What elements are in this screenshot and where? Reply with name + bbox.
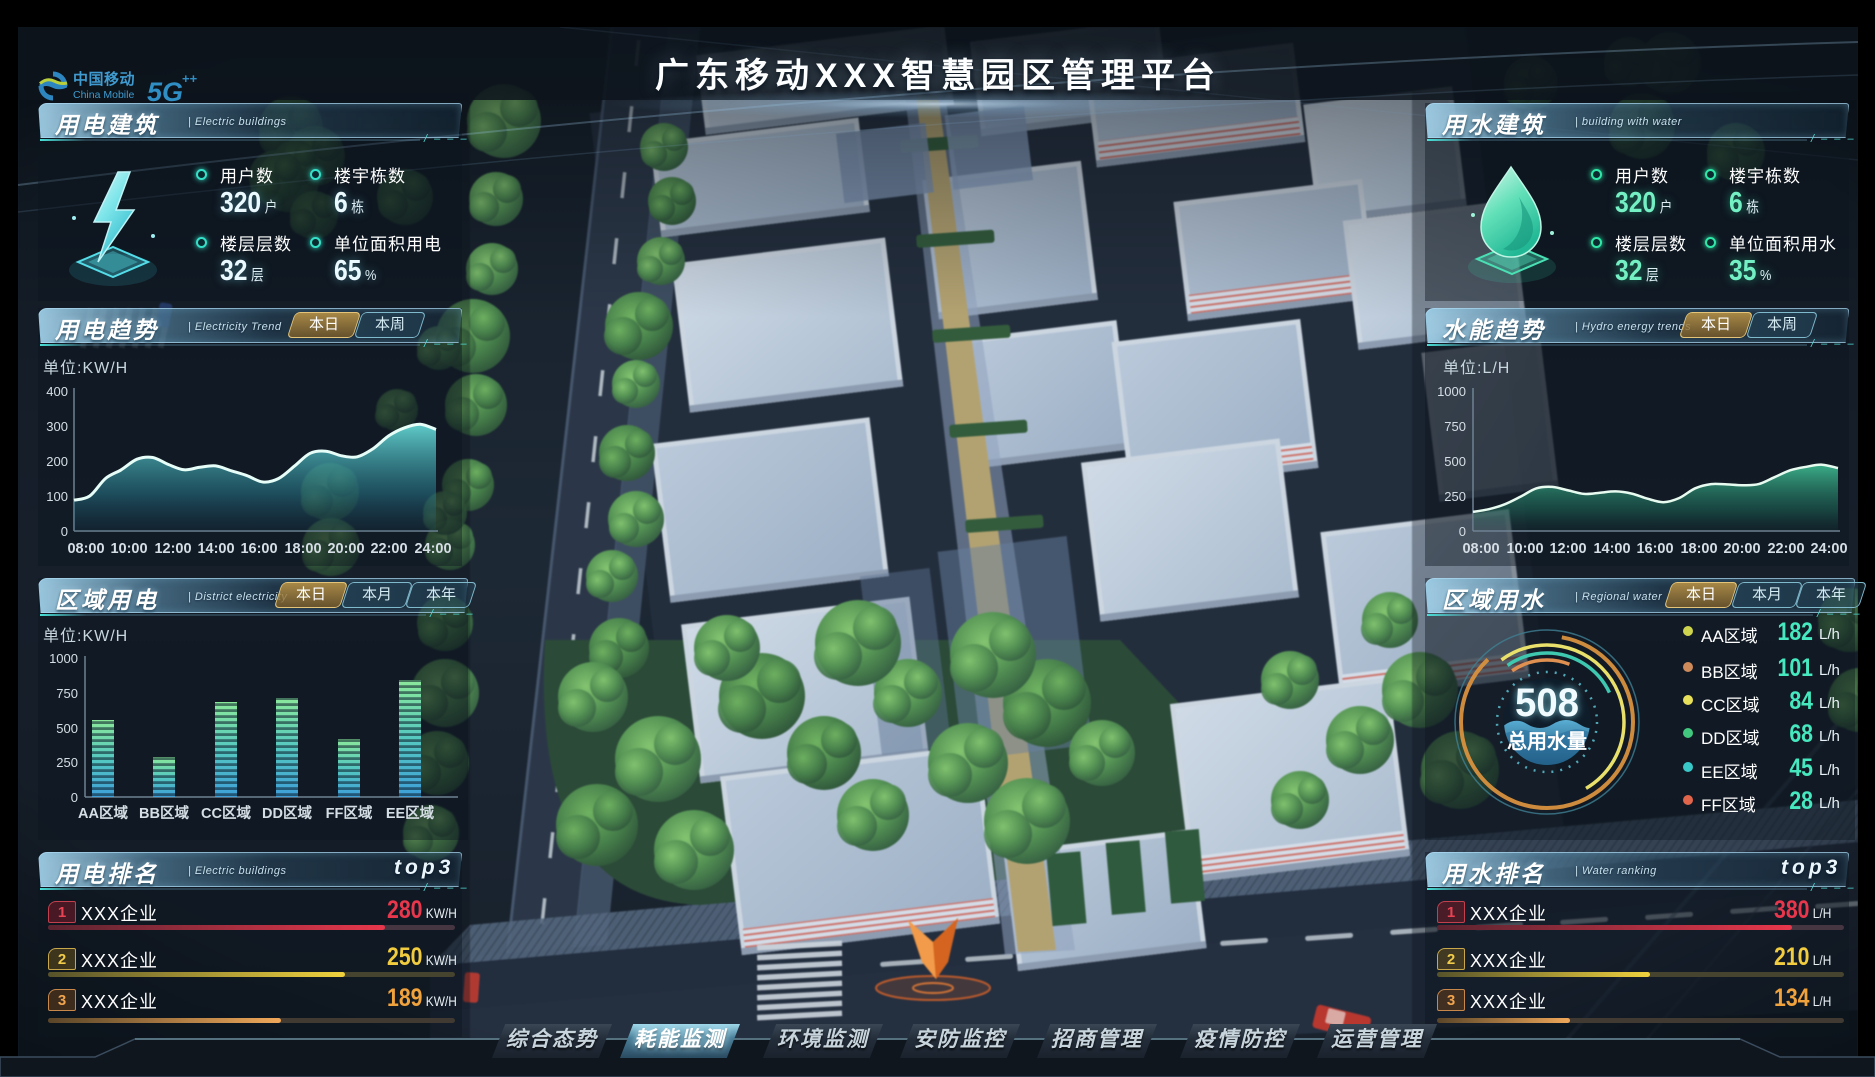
svg-text:250: 250 bbox=[1444, 489, 1466, 504]
svg-text:18:00: 18:00 bbox=[1680, 541, 1717, 557]
svg-text:EE区域: EE区域 bbox=[386, 804, 435, 822]
svg-text:24:00: 24:00 bbox=[414, 541, 451, 557]
svg-text:1000: 1000 bbox=[1437, 384, 1466, 399]
svg-text:16:00: 16:00 bbox=[240, 541, 277, 557]
svg-text:24:00: 24:00 bbox=[1810, 541, 1847, 557]
svg-text:08:00: 08:00 bbox=[67, 541, 104, 557]
svg-text:200: 200 bbox=[46, 454, 68, 469]
svg-text:12:00: 12:00 bbox=[154, 541, 191, 557]
svg-text:22:00: 22:00 bbox=[1767, 541, 1804, 557]
svg-text:500: 500 bbox=[1444, 454, 1466, 469]
svg-text:1000: 1000 bbox=[49, 651, 78, 666]
svg-text:20:00: 20:00 bbox=[327, 541, 364, 557]
svg-text:总用水量: 总用水量 bbox=[1507, 729, 1587, 753]
svg-text:10:00: 10:00 bbox=[1506, 541, 1543, 557]
svg-text:DD区域: DD区域 bbox=[262, 804, 312, 822]
svg-text:20:00: 20:00 bbox=[1723, 541, 1760, 557]
svg-text:18:00: 18:00 bbox=[284, 541, 321, 557]
svg-text:508: 508 bbox=[1515, 681, 1579, 725]
svg-text:100: 100 bbox=[46, 489, 68, 504]
svg-text:CC区域: CC区域 bbox=[201, 804, 251, 822]
svg-text:FF区域: FF区域 bbox=[326, 804, 373, 822]
svg-text:500: 500 bbox=[56, 721, 78, 736]
svg-text:14:00: 14:00 bbox=[197, 541, 234, 557]
svg-text:300: 300 bbox=[46, 419, 68, 434]
svg-text:250: 250 bbox=[56, 755, 78, 770]
svg-text:400: 400 bbox=[46, 384, 68, 399]
svg-text:10:00: 10:00 bbox=[110, 541, 147, 557]
svg-text:750: 750 bbox=[56, 686, 78, 701]
svg-text:08:00: 08:00 bbox=[1462, 541, 1499, 557]
svg-text:0: 0 bbox=[61, 524, 68, 539]
svg-text:750: 750 bbox=[1444, 419, 1466, 434]
svg-text:22:00: 22:00 bbox=[370, 541, 407, 557]
svg-text:0: 0 bbox=[71, 790, 78, 805]
svg-text:BB区域: BB区域 bbox=[139, 804, 189, 822]
svg-text:12:00: 12:00 bbox=[1549, 541, 1586, 557]
svg-text:0: 0 bbox=[1459, 524, 1466, 539]
svg-text:AA区域: AA区域 bbox=[78, 804, 128, 822]
svg-text:14:00: 14:00 bbox=[1593, 541, 1630, 557]
svg-text:16:00: 16:00 bbox=[1636, 541, 1673, 557]
